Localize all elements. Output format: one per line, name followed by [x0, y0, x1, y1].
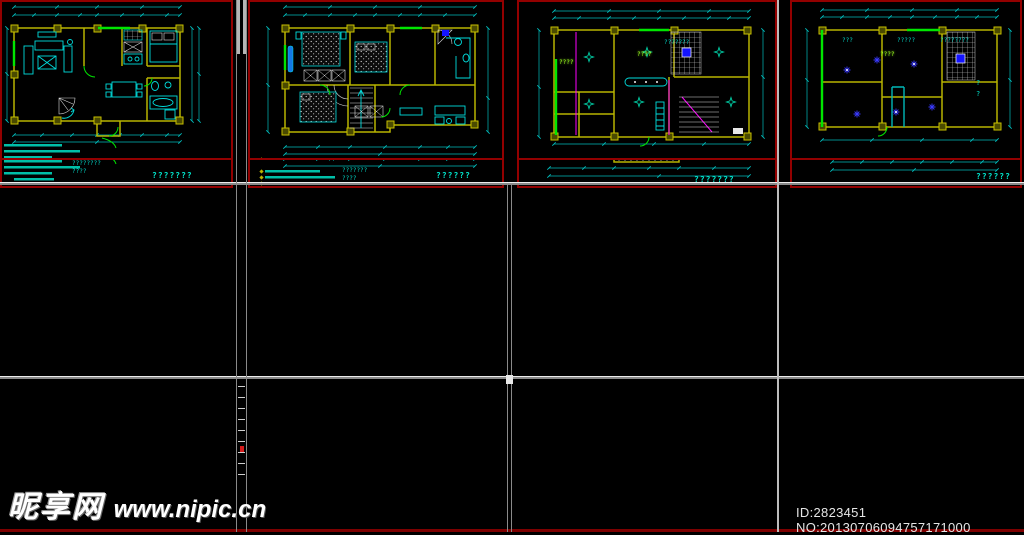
stairs — [679, 97, 719, 132]
question-marks: ? ? — [976, 78, 980, 99]
notes-bars — [4, 160, 80, 181]
plan-annotation: ???????? — [940, 38, 969, 44]
panel-furnished-plan-6 — [248, 0, 504, 160]
fold-strip-top-bars — [237, 0, 246, 54]
walls — [554, 30, 749, 137]
ceiling-plan-1-drawing — [519, 2, 775, 158]
watermark: 昵享网 www.nipic.cn — [8, 482, 266, 526]
door-arc — [640, 137, 649, 146]
light-track — [625, 78, 667, 86]
lime-mark: ???? — [637, 52, 651, 58]
plan-annotation: ??? — [842, 38, 853, 44]
cad-sheet-grid: ???????? ??????? — [0, 0, 1024, 532]
lime-mark: ???? — [880, 52, 894, 58]
furnished-plan-5-drawing — [2, 2, 231, 160]
furnished-plan-6-drawing — [250, 2, 502, 160]
fold-strip-rungs — [238, 386, 245, 478]
divider-junction-highlight — [506, 375, 513, 384]
plan-notes: ???????? ???? — [72, 160, 101, 175]
vertical-fold-strip — [236, 0, 247, 532]
plan-notes: ??????? ???? — [342, 167, 367, 182]
ceiling-plan-2-drawing — [792, 2, 1020, 158]
watermark-site-url: www.nipic.cn — [114, 496, 266, 523]
image-id-text: ID:2823451 NO:20130706094757171000 — [796, 505, 1024, 535]
blue-lights — [844, 57, 936, 118]
lime-mark: ???? — [559, 60, 573, 66]
pillars — [551, 27, 751, 140]
plan-annotation: ????? — [897, 38, 915, 44]
watermark-site-name: 昵享网 — [8, 490, 104, 525]
horizontal-divider — [0, 182, 1024, 185]
vertical-divider-2 — [507, 185, 512, 532]
fold-strip-red-mark — [240, 446, 244, 452]
radiator — [656, 102, 664, 130]
vertical-divider-3 — [777, 0, 779, 532]
panel-ceiling-plan-2: ??? ????? ???????? ? ? ???? — [790, 0, 1022, 160]
panel-ceiling-plan-1: ??????? ???? ???? — [517, 0, 777, 160]
corridor-teal — [892, 87, 904, 127]
blue-fixture — [956, 54, 965, 63]
plan-annotation: ??????? — [664, 40, 689, 46]
blue-fixture — [682, 48, 691, 57]
panel-furnished-plan-5 — [0, 0, 233, 160]
